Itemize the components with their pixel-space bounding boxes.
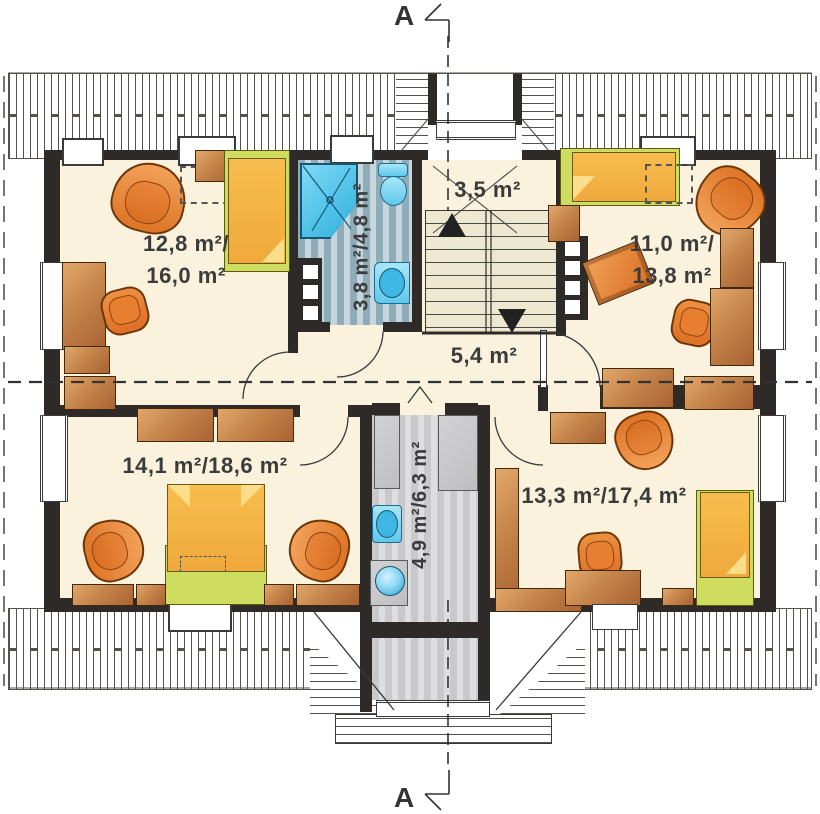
area-label-bedroom-bottom-left: 14,1 m²/18,6 m²: [60, 450, 350, 482]
toilet-tank: [378, 163, 408, 177]
area-label-bedroom-top-left: 12,8 m²/ 16,0 m²: [98, 228, 274, 292]
dresser: [548, 205, 580, 242]
area-label-bedroom-bottom-right: 13,3 m²/17,4 m²: [459, 480, 749, 512]
entrance-steps: [335, 714, 552, 744]
area-line-1: 11,0 m²/: [584, 228, 760, 260]
entrance-dormer-window: [376, 700, 490, 717]
desk-return: [592, 604, 638, 630]
toilet-bowl: [380, 176, 407, 206]
shelf: [64, 376, 116, 410]
shelf-cell: [565, 242, 580, 256]
area-label-bathroom: 3,8 m²/4,8 m²: [346, 170, 378, 325]
cabinet: [136, 584, 166, 606]
cabinet: [296, 584, 360, 606]
section-marker-bottom-line: [425, 770, 449, 810]
dresser: [217, 408, 294, 442]
staircase: [425, 210, 560, 334]
cabinet: [662, 588, 694, 606]
bathroom-shelf-unit: [298, 258, 322, 326]
blanket-fold: [726, 552, 746, 574]
area-line-2: 16,0 m²: [98, 260, 274, 292]
section-marker-bottom: A: [394, 782, 414, 814]
shelf-cell: [303, 265, 318, 279]
wardrobe-outline: [645, 164, 693, 204]
shelf-cell: [303, 306, 318, 320]
blanket-fold: [573, 176, 595, 200]
utility-counter-left: [374, 415, 400, 489]
wall-utility-north-b: [445, 403, 478, 415]
cabinet: [72, 584, 134, 606]
washing-machine-drum: [375, 566, 405, 596]
shelf: [64, 346, 110, 374]
wall-utility-east: [478, 405, 490, 712]
wall-utility-west: [360, 405, 372, 712]
section-marker-top: A: [394, 0, 414, 32]
wall-bathroom-east: [412, 150, 422, 332]
wall-utility-north-a: [372, 403, 400, 415]
dresser: [684, 376, 754, 410]
dresser: [602, 368, 674, 408]
dresser: [137, 408, 214, 442]
washbasin-bowl: [379, 268, 405, 298]
wall-door-stub-right: [538, 385, 548, 411]
wall-right: [760, 150, 776, 610]
window-right-upper: [758, 262, 786, 350]
blanket-fold: [168, 485, 190, 507]
area-label-bedroom-top-right: 11,0 m²/ 13,8 m²: [584, 228, 760, 292]
skylight-top-1: [62, 138, 104, 166]
stair-dormer-window: [436, 120, 516, 140]
wall-utility-cross-beam: [372, 622, 478, 638]
floor-plan: A A 12,8 m²/ 16,0 m² 3,5 m² 3,8 m²/4,8 m…: [0, 0, 820, 814]
area-label-landing: 3,5 m²: [430, 174, 545, 206]
stair-dormer-roof-left: [396, 74, 428, 152]
blanket-fold: [241, 485, 263, 507]
shelf-cell: [565, 281, 580, 295]
area-line-2: 13,8 m²: [584, 260, 760, 292]
wall-left: [44, 150, 60, 610]
skylight-bathroom: [330, 135, 374, 164]
wall-stair-dormer-east: [513, 73, 522, 125]
shelf-cell: [565, 261, 580, 275]
desk: [710, 288, 754, 366]
area-label-utility: 4,9 m²/6,3 m²: [404, 430, 436, 580]
shelf-cell: [565, 300, 580, 314]
shelf-cell: [303, 285, 318, 299]
dresser: [550, 412, 606, 444]
wall-bathroom-south-b: [383, 322, 422, 332]
wall-stair-east-lower: [556, 318, 566, 336]
area-line-1: 12,8 m²/: [98, 228, 274, 260]
pillow-outline: [180, 556, 226, 572]
desk: [565, 570, 641, 606]
cabinet: [264, 584, 294, 606]
stair-dormer: [428, 73, 522, 159]
area-label-hall: 5,4 m²: [424, 340, 544, 372]
stair-dormer-roof-right: [522, 74, 554, 152]
section-marker-top-line: [425, 4, 449, 42]
utility-sink-bowl: [376, 510, 398, 538]
window-right-lower: [758, 415, 786, 502]
wall-stair-dormer-west: [428, 73, 437, 125]
